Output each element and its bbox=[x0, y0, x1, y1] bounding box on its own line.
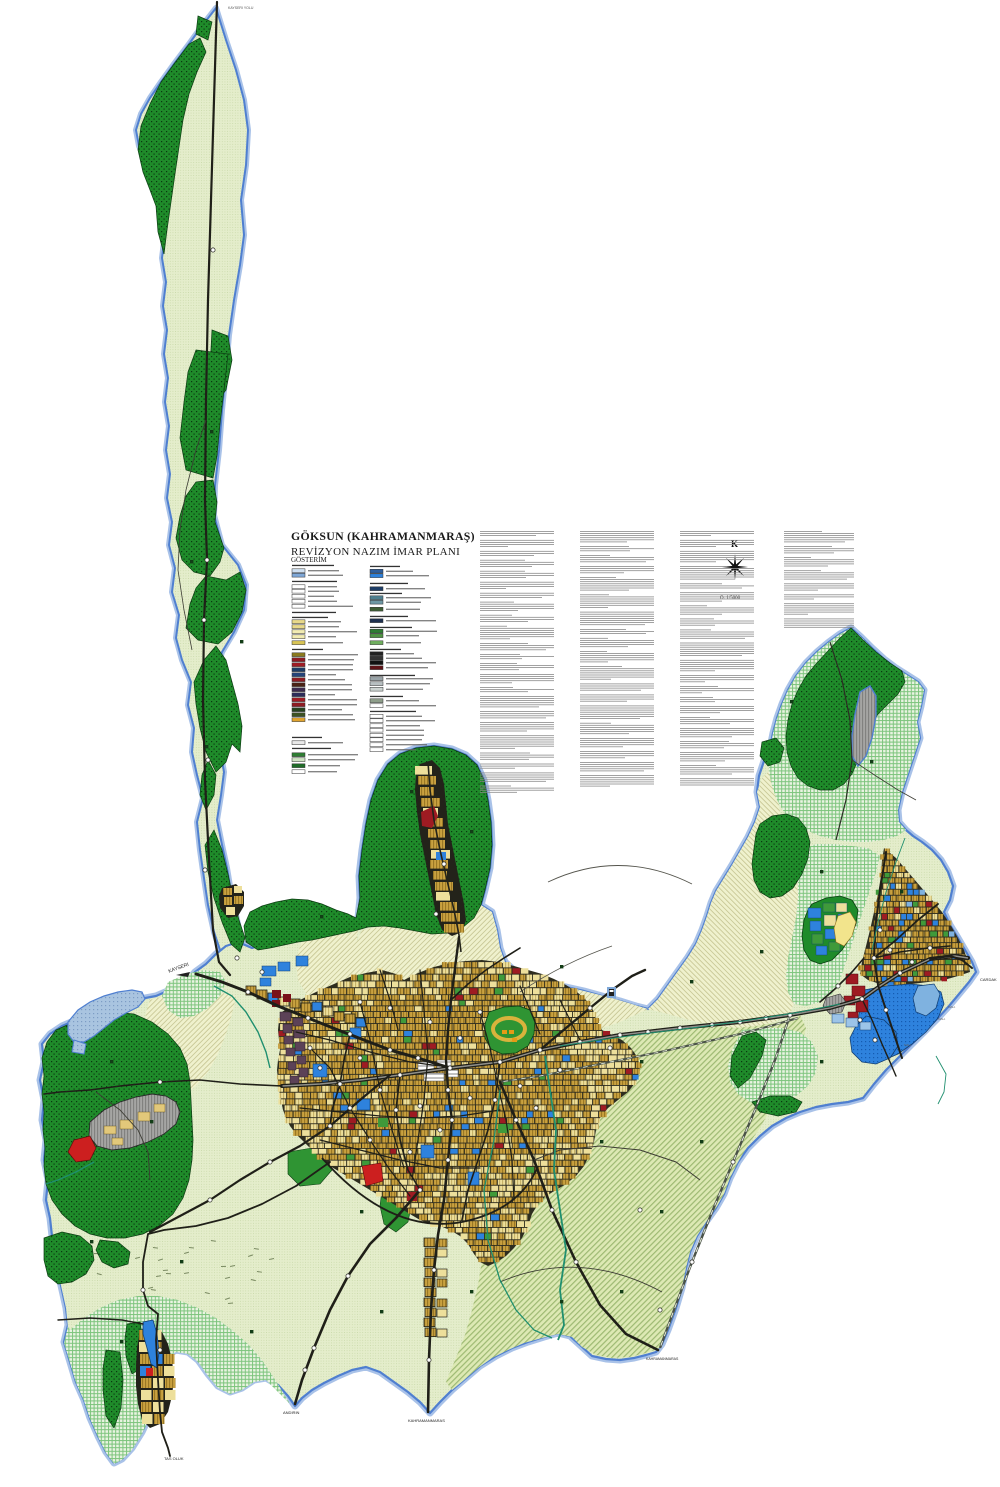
svg-text:KAYSERI YOLU: KAYSERI YOLU bbox=[228, 6, 254, 10]
svg-text:GÖSTERİM: GÖSTERİM bbox=[291, 556, 328, 564]
svg-text:MAH.: MAH. bbox=[938, 1017, 946, 1021]
svg-text:Ö: 1/5000: Ö: 1/5000 bbox=[720, 595, 741, 601]
svg-text:ANDIRIN: ANDIRIN bbox=[283, 1410, 300, 1415]
svg-text:KAHRAMANMARAS: KAHRAMANMARAS bbox=[408, 1418, 445, 1423]
svg-text:GÖKSUN (KAHRAMANMARAŞ): GÖKSUN (KAHRAMANMARAŞ) bbox=[291, 529, 475, 543]
svg-text:CARDAK: CARDAK bbox=[980, 977, 997, 982]
svg-text:MAH.: MAH. bbox=[948, 1005, 956, 1009]
svg-text:TAS OLUK: TAS OLUK bbox=[164, 1456, 184, 1461]
svg-text:KAHRAMANMARAS: KAHRAMANMARAS bbox=[646, 1357, 679, 1361]
svg-text:KAYSERI: KAYSERI bbox=[168, 962, 190, 975]
svg-text:MAH.: MAH. bbox=[904, 1043, 912, 1047]
